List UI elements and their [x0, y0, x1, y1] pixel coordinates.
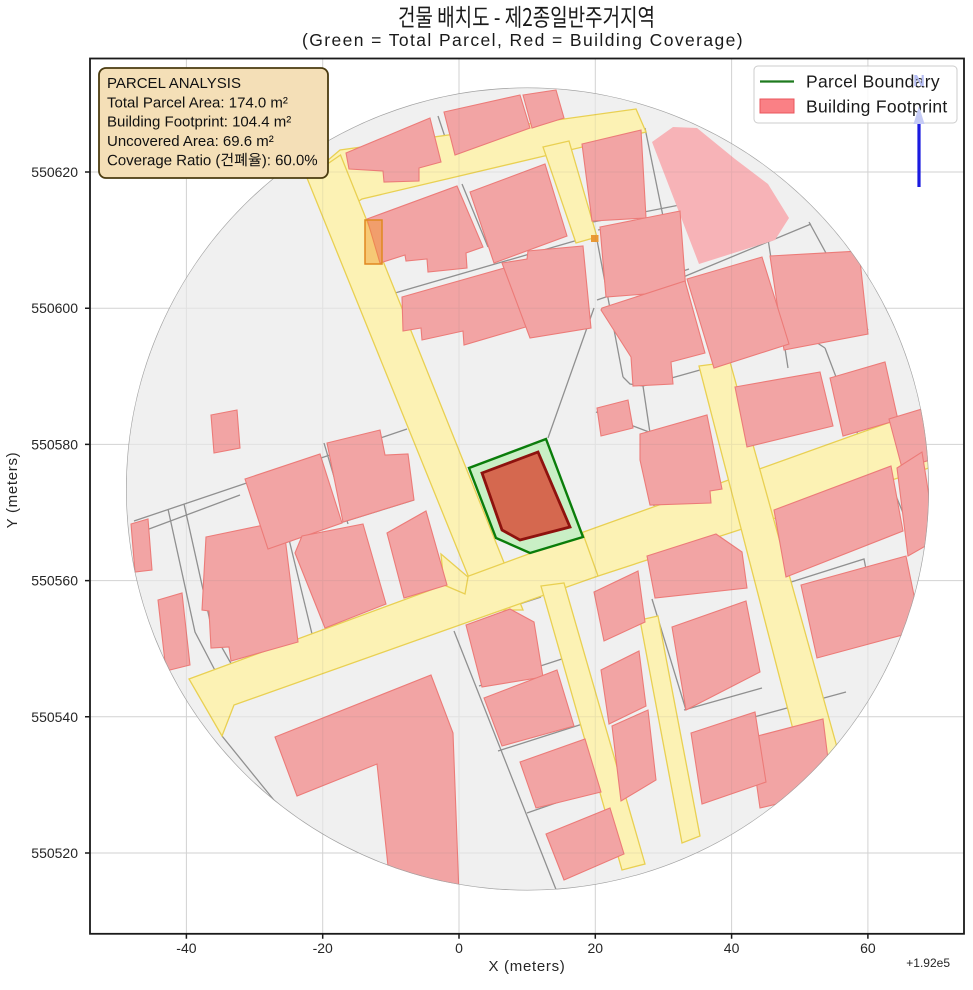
svg-text:N: N — [913, 73, 925, 90]
svg-text:40: 40 — [724, 940, 740, 956]
svg-text:X (meters): X (meters) — [488, 958, 565, 975]
svg-text:(Green = Total Parcel, Red = B: (Green = Total Parcel, Red = Building Co… — [302, 30, 744, 50]
svg-text:550620: 550620 — [31, 164, 78, 180]
svg-text:Y (meters): Y (meters) — [4, 452, 21, 529]
svg-text:550560: 550560 — [31, 573, 78, 589]
svg-text:550540: 550540 — [31, 709, 78, 725]
svg-text:Building Footprint: 104.4 m²: Building Footprint: 104.4 m² — [107, 114, 291, 131]
svg-text:+1.92e5: +1.92e5 — [906, 956, 950, 970]
svg-text:20: 20 — [588, 940, 604, 956]
svg-text:Uncovered Area: 69.6 m²: Uncovered Area: 69.6 m² — [107, 133, 274, 150]
svg-text:0: 0 — [455, 940, 463, 956]
svg-text:-20: -20 — [313, 940, 333, 956]
svg-text:-40: -40 — [176, 940, 196, 956]
svg-text:PARCEL ANALYSIS: PARCEL ANALYSIS — [107, 75, 241, 92]
svg-text:60: 60 — [860, 940, 876, 956]
svg-text:550520: 550520 — [31, 845, 78, 861]
svg-text:Total Parcel Area: 174.0 m²: Total Parcel Area: 174.0 m² — [107, 94, 288, 111]
svg-text:Building Footprint: Building Footprint — [806, 97, 948, 117]
svg-text:550600: 550600 — [31, 300, 78, 316]
svg-text:550580: 550580 — [31, 436, 78, 452]
